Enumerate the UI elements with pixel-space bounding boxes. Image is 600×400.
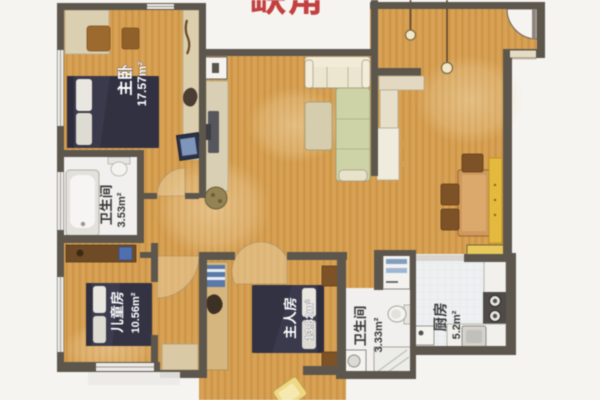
svg-text:17.57m²: 17.57m² [135, 62, 149, 107]
svg-text:10.56m²: 10.56m² [130, 292, 142, 333]
svg-text:5.2m²: 5.2m² [451, 310, 463, 339]
svg-text:13.82m²: 13.82m² [304, 299, 316, 340]
svg-text:3.33m²: 3.33m² [373, 317, 385, 352]
svg-text:3.53m²: 3.53m² [116, 192, 128, 227]
